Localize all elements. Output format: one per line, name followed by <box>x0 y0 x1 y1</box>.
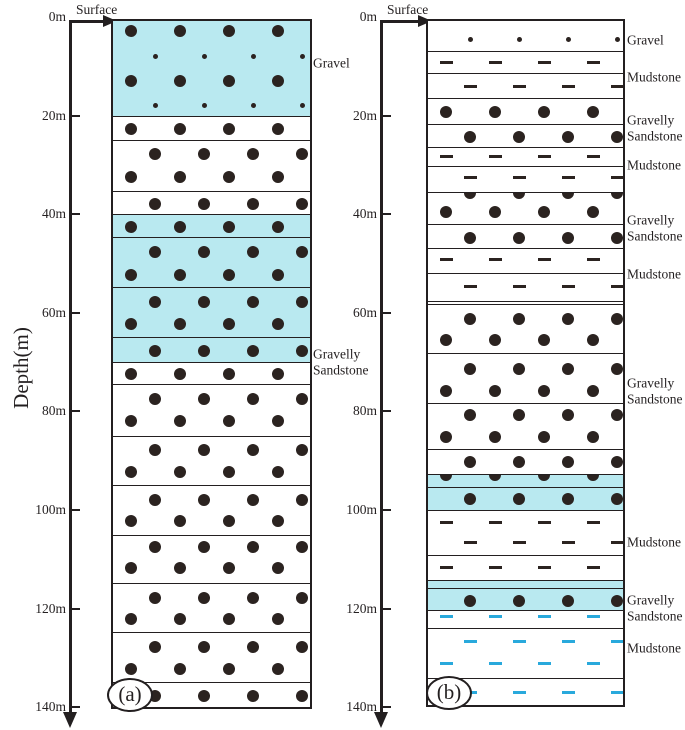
gravel-dot <box>198 641 210 653</box>
gravel-dot <box>611 493 623 505</box>
mudstone-dash <box>440 566 453 569</box>
gravel-dot <box>272 415 284 427</box>
layer-a-2 <box>113 116 310 141</box>
gravel-dot <box>198 148 210 160</box>
gravel-dot <box>464 313 476 325</box>
gravel-dot <box>296 541 308 553</box>
gravel-dot <box>587 206 599 218</box>
gravel-dot <box>272 562 284 574</box>
depth-axis-b <box>380 20 383 714</box>
gravel-dot <box>513 595 525 607</box>
tick-80m-a <box>70 410 80 412</box>
layer-b-19 <box>428 510 623 555</box>
tick-label-100m-b: 100m <box>321 502 377 518</box>
mudstone-dash <box>464 176 477 179</box>
gravel-dot <box>489 334 501 346</box>
lithology-label-b-6: Mudstone <box>627 266 681 282</box>
gravel-dot <box>562 232 574 244</box>
tick-40m-b <box>381 213 391 215</box>
gravel-dot <box>223 368 235 380</box>
gravel-dot <box>174 75 186 87</box>
gravel-dot <box>247 444 259 456</box>
tick-140m-b <box>381 706 391 708</box>
gravel-dot <box>125 663 137 675</box>
gravel-dot <box>149 494 161 506</box>
gravel-dot <box>538 431 550 443</box>
layer-b-22 <box>428 588 623 610</box>
tick-100m-a <box>70 509 80 511</box>
tick-140m-a <box>70 706 80 708</box>
gravel-dot <box>223 562 235 574</box>
mudstone-dash <box>562 85 575 88</box>
layer-b-3 <box>428 73 623 98</box>
gravel-dot <box>247 246 259 258</box>
gravel-dot <box>468 37 473 42</box>
tick-label-80m-b: 80m <box>321 403 377 419</box>
gravel-dot <box>611 363 623 375</box>
tick-60m-a <box>70 312 80 314</box>
mudstone-dash <box>489 61 502 64</box>
layer-a-6 <box>113 237 310 287</box>
tick-80m-b <box>381 410 391 412</box>
layer-b-13 <box>428 304 623 353</box>
mudstone-dash <box>562 640 575 643</box>
gravel-dot <box>489 474 501 481</box>
gravel-dot <box>611 313 623 325</box>
mudstone-dash <box>489 521 502 524</box>
gravel-dot <box>247 345 259 357</box>
gravel-dot <box>153 54 158 59</box>
tick-20m-b <box>381 115 391 117</box>
layer-a-14 <box>113 583 310 632</box>
gravel-dot <box>247 198 259 210</box>
gravel-dot <box>513 313 525 325</box>
gravel-dot <box>272 221 284 233</box>
gravel-dot <box>562 456 574 468</box>
layer-a-9 <box>113 362 310 384</box>
tick-100m-b <box>381 509 391 511</box>
lithology-label-b-8: Mudstone <box>627 534 681 550</box>
gravel-dot <box>149 246 161 258</box>
gravel-dot <box>198 592 210 604</box>
gravel-dot <box>247 494 259 506</box>
gravel-dot <box>611 456 623 468</box>
caption-b: (b) <box>426 676 472 710</box>
gravel-dot <box>272 269 284 281</box>
gravel-dot <box>272 75 284 87</box>
gravel-dot <box>251 103 256 108</box>
mudstone-dash <box>464 640 477 643</box>
gravel-dot <box>464 131 476 143</box>
gravel-dot <box>538 106 550 118</box>
gravel-dot <box>464 192 476 199</box>
gravel-dot <box>149 444 161 456</box>
tick-label-20m-b: 20m <box>321 108 377 124</box>
layer-a-15 <box>113 632 310 682</box>
tick-60m-b <box>381 312 391 314</box>
mudstone-dash <box>440 155 453 158</box>
gravel-dot <box>489 431 501 443</box>
gravel-dot <box>615 37 620 42</box>
layer-b-16 <box>428 449 623 474</box>
mudstone-dash <box>562 691 575 694</box>
layer-a-10 <box>113 384 310 436</box>
layer-a-7 <box>113 287 310 337</box>
tick-label-40m-b: 40m <box>321 206 377 222</box>
gravel-dot <box>125 75 137 87</box>
gravel-dot <box>296 494 308 506</box>
gravel-dot <box>464 363 476 375</box>
surface-line-b <box>381 20 420 23</box>
gravel-dot <box>247 148 259 160</box>
gravel-dot <box>513 409 525 421</box>
gravel-dot <box>517 37 522 42</box>
gravel-dot <box>247 690 259 702</box>
gravel-dot <box>587 334 599 346</box>
gravel-dot <box>513 232 525 244</box>
gravel-dot <box>296 296 308 308</box>
gravel-dot <box>440 334 452 346</box>
gravel-dot <box>562 493 574 505</box>
caption-a: (a) <box>107 678 153 712</box>
gravel-dot <box>440 431 452 443</box>
gravel-dot <box>174 466 186 478</box>
layer-b-15 <box>428 403 623 449</box>
gravel-dot <box>174 515 186 527</box>
layer-b-4 <box>428 98 623 124</box>
mudstone-dash <box>611 85 624 88</box>
gravel-dot <box>149 198 161 210</box>
gravel-dot <box>125 613 137 625</box>
gravel-dot <box>149 393 161 405</box>
stratigraphic-columns-figure: Depth(m) Surface0m20m40m60m80m100m120m14… <box>0 0 685 730</box>
gravel-dot <box>223 318 235 330</box>
layer-b-1 <box>428 21 623 51</box>
gravel-dot <box>538 474 550 481</box>
gravel-dot <box>513 192 525 199</box>
mudstone-dash <box>489 258 502 261</box>
mudstone-dash <box>538 662 551 665</box>
gravel-dot <box>464 409 476 421</box>
mudstone-dash <box>513 85 526 88</box>
gravel-dot <box>125 221 137 233</box>
mudstone-dash <box>562 285 575 288</box>
gravel-dot <box>125 25 137 37</box>
gravel-dot <box>223 415 235 427</box>
mudstone-dash <box>538 566 551 569</box>
gravel-dot <box>296 148 308 160</box>
gravel-dot <box>489 385 501 397</box>
gravel-dot <box>464 456 476 468</box>
tick-20m-a <box>70 115 80 117</box>
gravel-dot <box>198 246 210 258</box>
gravel-dot <box>247 641 259 653</box>
tick-label-140m-a: 140m <box>10 699 66 715</box>
gravel-dot <box>247 541 259 553</box>
gravel-dot <box>174 613 186 625</box>
gravel-dot <box>149 345 161 357</box>
gravel-dot <box>125 171 137 183</box>
gravel-dot <box>296 198 308 210</box>
mudstone-dash <box>562 541 575 544</box>
mudstone-dash <box>611 640 624 643</box>
gravel-dot <box>272 368 284 380</box>
layer-b-24 <box>428 628 623 678</box>
layer-a-11 <box>113 436 310 485</box>
lithology-label-b-10: Mudstone <box>627 640 681 656</box>
gravel-dot <box>174 123 186 135</box>
gravel-dot <box>174 562 186 574</box>
surface-label-a: Surface <box>76 3 117 17</box>
depth-axis-a <box>69 20 72 714</box>
gravel-dot <box>562 595 574 607</box>
layer-b-9 <box>428 224 623 248</box>
mudstone-dash <box>513 176 526 179</box>
gravel-dot <box>125 415 137 427</box>
gravel-dot <box>587 106 599 118</box>
gravel-dot <box>513 363 525 375</box>
mudstone-dash <box>513 691 526 694</box>
gravel-dot <box>198 494 210 506</box>
gravel-dot <box>125 515 137 527</box>
layer-b-17 <box>428 474 623 487</box>
gravel-dot <box>174 415 186 427</box>
mudstone-dash <box>489 662 502 665</box>
lithology-label-b-7: Gravelly Sandstone <box>627 376 683 407</box>
gravel-dot <box>198 690 210 702</box>
gravel-dot <box>562 313 574 325</box>
surface-label-b: Surface <box>387 3 428 17</box>
surface-line-a <box>70 20 105 23</box>
layer-b-10 <box>428 248 623 273</box>
layer-a-8 <box>113 337 310 362</box>
lithology-label-b-9: Gravelly Sandstone <box>627 593 683 624</box>
gravel-dot <box>562 131 574 143</box>
mudstone-dash <box>538 155 551 158</box>
mudstone-dash <box>489 615 502 618</box>
gravel-dot <box>513 493 525 505</box>
layer-b-20 <box>428 555 623 580</box>
gravel-dot <box>611 192 623 199</box>
lithology-column-b <box>426 19 625 707</box>
layer-b-23 <box>428 610 623 628</box>
lithology-column-a <box>111 19 312 709</box>
tick-label-80m-a: 80m <box>10 403 66 419</box>
gravel-dot <box>198 345 210 357</box>
mudstone-dash <box>587 566 600 569</box>
gravel-dot <box>223 269 235 281</box>
gravel-dot <box>489 106 501 118</box>
tick-label-100m-a: 100m <box>10 502 66 518</box>
gravel-dot <box>149 592 161 604</box>
lithology-label-b-3: Gravelly Sandstone <box>627 113 683 144</box>
tick-label-120m-a: 120m <box>10 601 66 617</box>
gravel-dot <box>272 663 284 675</box>
lithology-label-a-1: Gravel <box>313 55 350 71</box>
lithology-label-b-5: Gravelly Sandstone <box>627 213 683 244</box>
mudstone-dash <box>538 615 551 618</box>
gravel-dot <box>198 393 210 405</box>
mudstone-dash <box>538 258 551 261</box>
layer-b-18 <box>428 487 623 510</box>
mudstone-dash <box>587 662 600 665</box>
gravel-dot <box>149 148 161 160</box>
layer-b-2 <box>428 51 623 73</box>
gravel-dot <box>566 37 571 42</box>
mudstone-dash <box>513 285 526 288</box>
gravel-dot <box>296 641 308 653</box>
gravel-dot <box>296 345 308 357</box>
tick-label-120m-b: 120m <box>321 601 377 617</box>
layer-b-11 <box>428 273 623 301</box>
layer-b-8 <box>428 192 623 224</box>
gravel-dot <box>513 456 525 468</box>
layer-a-13 <box>113 535 310 583</box>
gravel-dot <box>125 269 137 281</box>
mudstone-dash <box>489 155 502 158</box>
gravel-dot <box>153 103 158 108</box>
gravel-dot <box>272 515 284 527</box>
gravel-dot <box>513 131 525 143</box>
tick-120m-b <box>381 608 391 610</box>
lithology-label-a-2: Gravelly Sandstone <box>313 347 369 378</box>
gravel-dot <box>198 198 210 210</box>
tick-label-140m-b: 140m <box>321 699 377 715</box>
tick-label-60m-a: 60m <box>10 305 66 321</box>
lithology-label-b-2: Mudstone <box>627 69 681 85</box>
gravel-dot <box>223 613 235 625</box>
gravel-dot <box>251 54 256 59</box>
gravel-dot <box>223 123 235 135</box>
gravel-dot <box>198 296 210 308</box>
layer-b-14 <box>428 353 623 403</box>
gravel-dot <box>272 318 284 330</box>
mudstone-dash <box>611 176 624 179</box>
gravel-dot <box>272 123 284 135</box>
mudstone-dash <box>513 640 526 643</box>
gravel-dot <box>611 131 623 143</box>
gravel-dot <box>247 592 259 604</box>
gravel-dot <box>300 54 305 59</box>
gravel-dot <box>198 541 210 553</box>
mudstone-dash <box>440 521 453 524</box>
gravel-dot <box>587 431 599 443</box>
mudstone-dash <box>513 541 526 544</box>
mudstone-dash <box>464 541 477 544</box>
gravel-dot <box>538 206 550 218</box>
gravel-dot <box>149 541 161 553</box>
gravel-dot <box>538 385 550 397</box>
gravel-dot <box>125 466 137 478</box>
tick-label-60m-b: 60m <box>321 305 377 321</box>
gravel-dot <box>464 493 476 505</box>
layer-a-4 <box>113 191 310 214</box>
gravel-dot <box>272 613 284 625</box>
mudstone-dash <box>538 521 551 524</box>
gravel-dot <box>440 106 452 118</box>
gravel-dot <box>174 269 186 281</box>
layer-b-5 <box>428 124 623 147</box>
mudstone-dash <box>440 662 453 665</box>
gravel-dot <box>202 54 207 59</box>
gravel-dot <box>223 663 235 675</box>
gravel-dot <box>174 171 186 183</box>
gravel-dot <box>296 592 308 604</box>
gravel-dot <box>223 25 235 37</box>
gravel-dot <box>223 171 235 183</box>
gravel-dot <box>174 221 186 233</box>
gravel-dot <box>223 75 235 87</box>
gravel-dot <box>223 515 235 527</box>
tick-40m-a <box>70 213 80 215</box>
mudstone-dash <box>440 258 453 261</box>
gravel-dot <box>149 641 161 653</box>
gravel-dot <box>272 171 284 183</box>
layer-a-3 <box>113 140 310 191</box>
tick-label-20m-a: 20m <box>10 108 66 124</box>
layer-b-6 <box>428 147 623 166</box>
gravel-dot <box>587 385 599 397</box>
gravel-dot <box>125 123 137 135</box>
gravel-dot <box>125 562 137 574</box>
gravel-dot <box>247 393 259 405</box>
mudstone-dash <box>611 691 624 694</box>
gravel-dot <box>562 363 574 375</box>
layer-b-7 <box>428 166 623 192</box>
gravel-dot <box>300 103 305 108</box>
gravel-dot <box>149 296 161 308</box>
mudstone-dash <box>611 541 624 544</box>
gravel-dot <box>464 595 476 607</box>
mudstone-dash <box>464 285 477 288</box>
layer-a-5 <box>113 214 310 237</box>
gravel-dot <box>562 192 574 199</box>
mudstone-dash <box>562 176 575 179</box>
mudstone-dash <box>587 155 600 158</box>
gravel-dot <box>296 444 308 456</box>
gravel-dot <box>440 385 452 397</box>
gravel-dot <box>611 232 623 244</box>
gravel-dot <box>174 318 186 330</box>
layer-b-21 <box>428 580 623 588</box>
gravel-dot <box>125 318 137 330</box>
gravel-dot <box>223 466 235 478</box>
mudstone-dash <box>440 615 453 618</box>
gravel-dot <box>174 25 186 37</box>
gravel-dot <box>538 334 550 346</box>
gravel-dot <box>489 206 501 218</box>
gravel-dot <box>272 25 284 37</box>
gravel-dot <box>198 444 210 456</box>
gravel-dot <box>174 368 186 380</box>
gravel-dot <box>296 393 308 405</box>
mudstone-dash <box>587 521 600 524</box>
gravel-dot <box>272 466 284 478</box>
mudstone-dash <box>538 61 551 64</box>
mudstone-dash <box>489 566 502 569</box>
gravel-dot <box>174 663 186 675</box>
gravel-dot <box>202 103 207 108</box>
tick-120m-a <box>70 608 80 610</box>
mudstone-dash <box>587 61 600 64</box>
gravel-dot <box>296 690 308 702</box>
lithology-label-b-1: Gravel <box>627 32 664 48</box>
tick-label-40m-a: 40m <box>10 206 66 222</box>
tick-label-0m-a: 0m <box>10 9 66 25</box>
gravel-dot <box>587 474 599 481</box>
mudstone-dash <box>587 258 600 261</box>
gravel-dot <box>223 221 235 233</box>
